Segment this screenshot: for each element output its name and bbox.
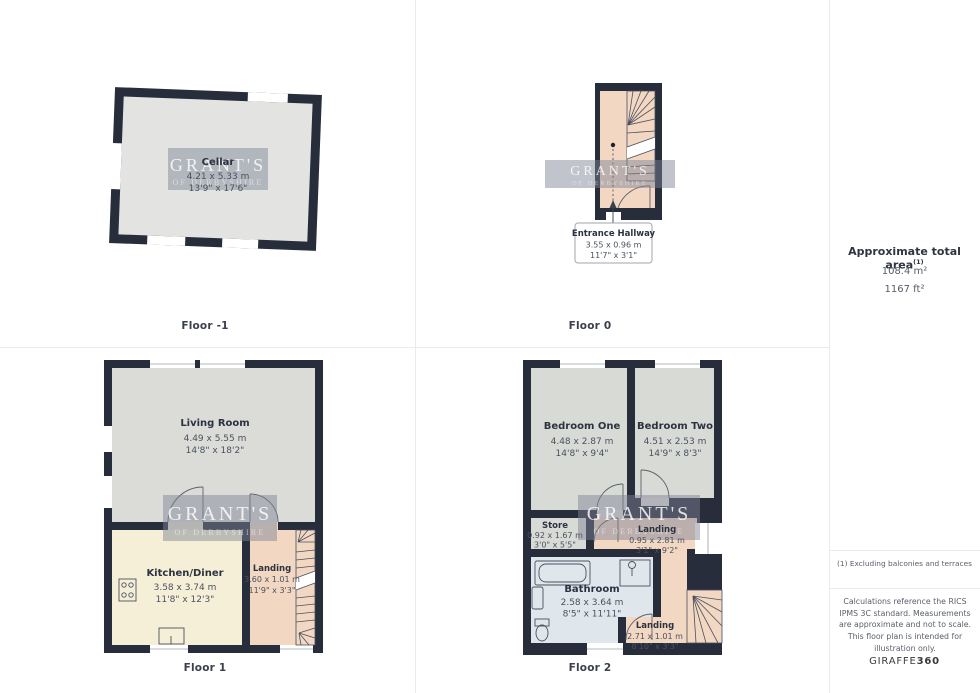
svg-text:2.71 x 1.01 m: 2.71 x 1.01 m (627, 632, 683, 641)
grid-hline-middle (0, 347, 829, 348)
window (100, 426, 112, 452)
svg-text:Bathroom: Bathroom (564, 584, 619, 595)
room-label-bathroom: Bathroom 2.58 x 3.64 m 8'5" x 11'11" (561, 584, 624, 620)
floorplan-floor1: GRANT'S OF DERBYSHIRE Living Room 4.49 x… (95, 350, 345, 662)
svg-text:Kitchen/Diner: Kitchen/Diner (146, 568, 223, 579)
floorplan-canvas: GRANT'S OF DERBYSHIRE Cellar 4.21 x 5.33… (0, 0, 980, 693)
svg-text:3.58 x 3.74 m: 3.58 x 3.74 m (154, 583, 217, 593)
svg-text:13'9" x 17'6": 13'9" x 17'6" (189, 184, 248, 194)
floor-label-0: Floor 0 (530, 320, 650, 332)
camera-dot (611, 143, 615, 147)
svg-text:OF DERBYSHIRE: OF DERBYSHIRE (174, 528, 265, 537)
window (147, 235, 185, 245)
svg-text:GRANT'S: GRANT'S (587, 503, 692, 525)
giraffe360-logo: GIRAFFE360 (829, 656, 980, 667)
svg-text:0.92 x 1.67 m: 0.92 x 1.67 m (527, 531, 583, 540)
window (248, 92, 288, 103)
svg-text:4.48 x 2.87 m: 4.48 x 2.87 m (551, 437, 614, 447)
sidebar-divider-1 (829, 550, 980, 551)
brand-number: 360 (917, 656, 940, 667)
footnote-marker: (1) (913, 258, 923, 266)
svg-text:Store: Store (542, 521, 568, 531)
svg-text:11'9" x 3'3": 11'9" x 3'3" (248, 586, 295, 595)
watermark: GRANT'S OF DERBYSHIRE (163, 495, 277, 541)
floor-label-1: Floor 1 (145, 662, 265, 674)
bathroom-floor (531, 617, 618, 643)
svg-text:4.21 x 5.33 m: 4.21 x 5.33 m (187, 172, 250, 182)
total-area-metric: 108.4 m² (829, 266, 980, 277)
svg-text:3.60 x 1.01 m: 3.60 x 1.01 m (244, 575, 300, 584)
svg-text:Entrance Hallway: Entrance Hallway (572, 229, 656, 239)
bedroom-two-floor (635, 368, 714, 498)
room-label-entrance-hallway: Entrance Hallway 3.55 x 0.96 m 11'7" x 3… (572, 223, 656, 263)
total-area-imperial: 1167 ft² (829, 284, 980, 295)
svg-text:3'1" x 9'2": 3'1" x 9'2" (636, 546, 678, 555)
svg-text:8'5" x 11'11": 8'5" x 11'11" (563, 610, 622, 620)
room-label-kitchen-diner: Kitchen/Diner 3.58 x 3.74 m 11'8" x 12'3… (146, 568, 223, 605)
window (100, 476, 112, 508)
svg-text:Living Room: Living Room (180, 418, 249, 429)
svg-text:4.49 x 5.55 m: 4.49 x 5.55 m (184, 434, 247, 444)
svg-text:0.95 x 2.81 m: 0.95 x 2.81 m (629, 536, 685, 545)
svg-text:14'8" x 18'2": 14'8" x 18'2" (186, 446, 245, 456)
svg-text:Landing: Landing (636, 621, 674, 631)
svg-text:GRANT'S: GRANT'S (168, 503, 273, 525)
svg-text:OF DERBYSHIRE: OF DERBYSHIRE (572, 181, 647, 187)
room-label-living-room: Living Room 4.49 x 5.55 m 14'8" x 18'2" (180, 418, 249, 456)
floor-label-2: Floor 2 (530, 662, 650, 674)
svg-text:14'8" x 9'4": 14'8" x 9'4" (556, 449, 609, 459)
entrance-opening (606, 212, 621, 220)
floorplan-floor0: GRANT'S OF DERBYSHIRE Entrance Hallway 3… (540, 75, 705, 270)
svg-text:2.58 x 3.64 m: 2.58 x 3.64 m (561, 598, 624, 608)
grid-vline-right (829, 0, 830, 693)
watermark: GRANT'S OF DERBYSHIRE (545, 160, 675, 188)
brand-name: GIRAFFE (869, 656, 917, 667)
svg-text:Bedroom Two: Bedroom Two (637, 421, 713, 432)
svg-text:3'0" x 5'5": 3'0" x 5'5" (534, 541, 576, 550)
svg-text:14'9" x 8'3": 14'9" x 8'3" (649, 449, 702, 459)
sidebar-divider-2 (829, 588, 980, 589)
window (222, 238, 258, 248)
svg-text:Landing: Landing (638, 525, 676, 535)
svg-text:GRANT'S: GRANT'S (570, 164, 650, 179)
svg-text:Landing: Landing (253, 564, 291, 574)
landing-strip-floor (661, 549, 687, 617)
floor-label-minus1: Floor -1 (145, 320, 265, 332)
footnote: (1) Excluding balconies and terraces (829, 559, 980, 568)
svg-text:11'8" x 12'3": 11'8" x 12'3" (156, 595, 215, 605)
svg-text:3.55 x 0.96 m: 3.55 x 0.96 m (586, 241, 642, 250)
floorplan-floor2: GRANT'S OF DERBYSHIRE Bedroom One 4.48 x… (505, 350, 745, 662)
svg-text:Bedroom One: Bedroom One (544, 421, 621, 432)
svg-text:4.51 x 2.53 m: 4.51 x 2.53 m (644, 437, 707, 447)
floorplan-floor-minus1: GRANT'S OF DERBYSHIRE Cellar 4.21 x 5.33… (95, 75, 345, 265)
disclaimer: Calculations reference the RICS IPMS 3C … (837, 596, 973, 654)
svg-text:8'10" x 3'3": 8'10" x 3'3" (631, 642, 678, 651)
window (107, 143, 122, 189)
svg-text:Cellar: Cellar (202, 157, 235, 168)
svg-text:11'7" x 3'1": 11'7" x 3'1" (590, 251, 637, 260)
